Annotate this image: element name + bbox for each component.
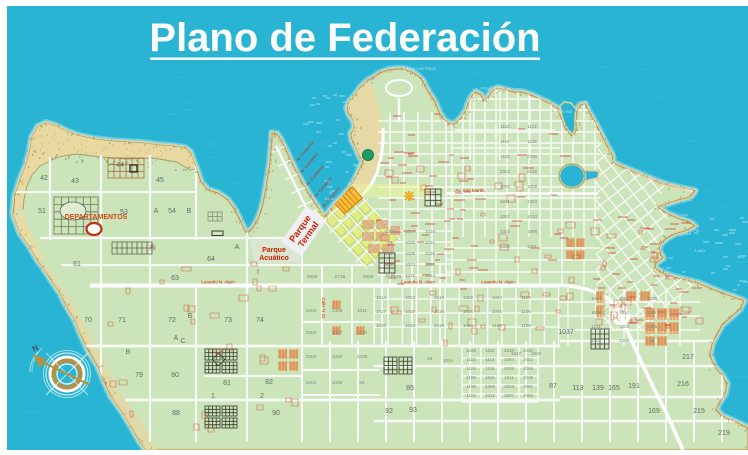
svg-text:Av. San Martín: Av. San Martín [455, 188, 485, 193]
svg-text:Calle N 31: Calle N 31 [321, 297, 326, 319]
svg-text:1003: 1003 [591, 338, 602, 343]
svg-text:84: 84 [649, 338, 655, 343]
svg-text:1118: 1118 [500, 154, 510, 159]
svg-text:1114: 1114 [485, 357, 495, 362]
svg-text:169: 169 [648, 408, 660, 415]
svg-text:1008: 1008 [332, 308, 343, 314]
svg-text:1001: 1001 [647, 310, 658, 315]
svg-text:1043: 1043 [492, 295, 503, 300]
svg-text:1003: 1003 [306, 330, 317, 336]
svg-text:1110: 1110 [500, 124, 510, 129]
svg-text:1013: 1013 [434, 295, 445, 300]
svg-text:1002: 1002 [619, 324, 630, 329]
svg-text:1001: 1001 [306, 380, 317, 386]
svg-text:2312: 2312 [485, 393, 496, 398]
svg-text:216: 216 [677, 381, 689, 388]
svg-text:1008: 1008 [527, 184, 538, 189]
svg-text:Parque: Parque [262, 247, 286, 254]
svg-text:1004: 1004 [504, 357, 515, 362]
svg-text:1022: 1022 [463, 295, 474, 300]
svg-text:1022: 1022 [425, 240, 436, 245]
svg-text:92: 92 [385, 408, 393, 415]
svg-text:C: C [180, 338, 185, 345]
svg-text:191: 191 [628, 383, 640, 390]
svg-text:1019: 1019 [425, 229, 436, 234]
svg-text:1006: 1006 [619, 338, 630, 343]
svg-text:44: 44 [116, 162, 124, 169]
svg-text:1029: 1029 [405, 323, 416, 328]
svg-text:1116: 1116 [527, 139, 537, 144]
svg-text:A: A [154, 208, 159, 215]
svg-text:72: 72 [168, 317, 176, 324]
svg-text:1005: 1005 [385, 229, 396, 234]
svg-text:1005: 1005 [523, 393, 534, 398]
svg-text:88: 88 [172, 410, 180, 417]
svg-text:165: 165 [608, 385, 620, 392]
svg-text:43: 43 [71, 178, 79, 185]
svg-text:1013: 1013 [405, 262, 416, 267]
svg-text:1011: 1011 [357, 308, 368, 314]
svg-text:84: 84 [359, 380, 365, 386]
svg-text:1020: 1020 [531, 351, 542, 356]
svg-text:1037: 1037 [558, 329, 574, 336]
svg-text:1001: 1001 [527, 244, 538, 249]
svg-text:215: 215 [693, 408, 705, 415]
svg-text:82: 82 [265, 379, 273, 386]
svg-text:45: 45 [156, 177, 164, 184]
svg-text:1114: 1114 [500, 139, 510, 144]
svg-text:Playa Sta: Playa Sta [626, 226, 646, 231]
svg-text:1040: 1040 [425, 262, 436, 267]
svg-text:1005: 1005 [332, 380, 343, 386]
svg-text:1040: 1040 [463, 323, 474, 328]
svg-text:A: A [174, 335, 179, 342]
svg-text:64: 64 [207, 256, 215, 263]
svg-text:1007: 1007 [332, 330, 343, 336]
svg-text:1043: 1043 [425, 273, 436, 278]
svg-text:42: 42 [40, 175, 48, 182]
svg-text:1038: 1038 [463, 309, 474, 314]
svg-text:B: B [187, 208, 192, 215]
svg-text:2306: 2306 [527, 154, 538, 159]
svg-text:63: 63 [171, 275, 179, 282]
svg-text:1011: 1011 [500, 199, 510, 204]
svg-text:1039: 1039 [647, 296, 658, 301]
svg-text:1002: 1002 [523, 357, 534, 362]
svg-text:1020: 1020 [376, 323, 387, 328]
svg-text:1039: 1039 [500, 244, 511, 249]
svg-text:1118: 1118 [485, 375, 495, 380]
svg-text:1005: 1005 [647, 324, 658, 329]
svg-text:Playa Los Pinos: Playa Los Pinos [404, 66, 437, 71]
svg-text:1019: 1019 [434, 323, 445, 328]
svg-text:1002: 1002 [500, 229, 511, 234]
svg-text:1110: 1110 [466, 393, 476, 398]
svg-text:Plano de Federación: Plano de Federación [149, 16, 540, 60]
svg-text:1102: 1102 [492, 323, 502, 328]
svg-text:1006: 1006 [332, 354, 343, 360]
svg-text:1002: 1002 [306, 354, 317, 360]
svg-text:1039: 1039 [523, 375, 534, 380]
svg-text:1011: 1011 [591, 324, 601, 329]
svg-text:2306: 2306 [485, 384, 496, 389]
svg-text:84: 84 [427, 356, 433, 361]
svg-text:2336: 2336 [391, 274, 402, 280]
svg-text:Leandro N. Alem: Leandro N. Alem [481, 280, 515, 285]
svg-text:1112: 1112 [485, 348, 495, 353]
svg-text:1039: 1039 [357, 354, 368, 360]
svg-text:Leandro N. Alem: Leandro N. Alem [401, 280, 435, 285]
svg-text:Playa Sur: Playa Sur [553, 109, 573, 114]
svg-text:1004: 1004 [500, 184, 511, 189]
svg-text:81: 81 [223, 380, 231, 387]
svg-text:1008: 1008 [591, 310, 602, 315]
svg-text:1108: 1108 [466, 384, 476, 389]
svg-text:2: 2 [260, 393, 264, 400]
svg-text:1104: 1104 [466, 366, 476, 371]
svg-text:79: 79 [135, 372, 143, 379]
svg-text:2936: 2936 [307, 274, 318, 280]
svg-text:1007: 1007 [619, 296, 630, 301]
svg-text:54: 54 [168, 208, 176, 215]
svg-text:B: B [188, 313, 193, 320]
svg-text:1023: 1023 [405, 229, 416, 234]
svg-text:2312: 2312 [500, 169, 511, 174]
svg-text:1116: 1116 [485, 366, 495, 371]
svg-text:74: 74 [256, 317, 264, 324]
svg-text:1008: 1008 [504, 366, 515, 371]
svg-text:1006: 1006 [527, 229, 538, 234]
svg-text:1017: 1017 [511, 351, 522, 356]
svg-text:1010: 1010 [619, 310, 630, 315]
svg-text:2736: 2736 [335, 274, 346, 280]
svg-text:51: 51 [38, 208, 46, 215]
svg-text:1045: 1045 [492, 309, 503, 314]
svg-text:1003: 1003 [504, 384, 515, 389]
svg-text:93: 93 [409, 407, 417, 414]
svg-text:84: 84 [387, 240, 393, 245]
svg-text:1011: 1011 [504, 375, 514, 380]
svg-text:1007: 1007 [500, 214, 511, 219]
svg-text:1045: 1045 [466, 348, 477, 353]
svg-text:1023: 1023 [405, 295, 416, 300]
svg-text:Playa Salto: Playa Salto [481, 86, 504, 91]
svg-text:1: 1 [211, 393, 215, 400]
svg-text:1038: 1038 [425, 251, 436, 256]
svg-text:1004: 1004 [591, 296, 602, 301]
svg-text:71: 71 [118, 317, 126, 324]
svg-text:1010: 1010 [357, 330, 368, 336]
svg-text:1010: 1010 [527, 214, 538, 219]
svg-text:Leandro N. Alem: Leandro N. Alem [201, 280, 235, 285]
svg-text:1014: 1014 [385, 251, 396, 256]
svg-text:1106: 1106 [466, 375, 476, 380]
svg-text:B: B [126, 349, 131, 356]
svg-text:85: 85 [406, 385, 414, 392]
svg-text:I: I [257, 269, 259, 276]
svg-text:1014: 1014 [443, 358, 454, 363]
svg-text:Lago: Lago [695, 248, 706, 253]
svg-text:2318: 2318 [527, 169, 538, 174]
svg-text:219: 219 [718, 430, 730, 437]
svg-text:1104: 1104 [521, 295, 531, 300]
svg-text:1026: 1026 [405, 309, 416, 314]
svg-text:1006: 1006 [523, 366, 534, 371]
svg-text:217: 217 [682, 354, 694, 361]
svg-text:61: 61 [73, 261, 81, 268]
svg-text:80: 80 [171, 372, 179, 379]
svg-text:1003: 1003 [527, 199, 538, 204]
svg-text:1112: 1112 [527, 124, 537, 129]
svg-text:A: A [150, 244, 155, 251]
svg-text:73: 73 [224, 317, 232, 324]
svg-text:1108: 1108 [521, 323, 531, 328]
svg-text:139: 139 [592, 385, 604, 392]
svg-text:1004: 1004 [306, 308, 317, 314]
svg-text:1029: 1029 [405, 251, 416, 256]
svg-text:1016: 1016 [434, 309, 445, 314]
svg-text:DEPARTAMENTOS: DEPARTAMENTOS [65, 214, 128, 221]
svg-text:1016: 1016 [405, 273, 416, 278]
svg-text:A: A [235, 244, 240, 251]
svg-text:1007: 1007 [504, 393, 515, 398]
svg-text:1017: 1017 [385, 262, 396, 267]
svg-text:87: 87 [549, 383, 557, 390]
svg-text:2536: 2536 [363, 274, 374, 280]
svg-text:90: 90 [272, 410, 280, 417]
svg-text:1001: 1001 [523, 384, 534, 389]
svg-text:1017: 1017 [376, 309, 387, 314]
svg-text:Acuático: Acuático [259, 255, 289, 262]
svg-text:113: 113 [572, 385, 583, 392]
svg-text:1102: 1102 [466, 357, 476, 362]
svg-text:70: 70 [84, 317, 92, 324]
svg-text:1026: 1026 [405, 240, 416, 245]
svg-text:1014: 1014 [376, 295, 387, 300]
svg-text:1106: 1106 [521, 309, 531, 314]
